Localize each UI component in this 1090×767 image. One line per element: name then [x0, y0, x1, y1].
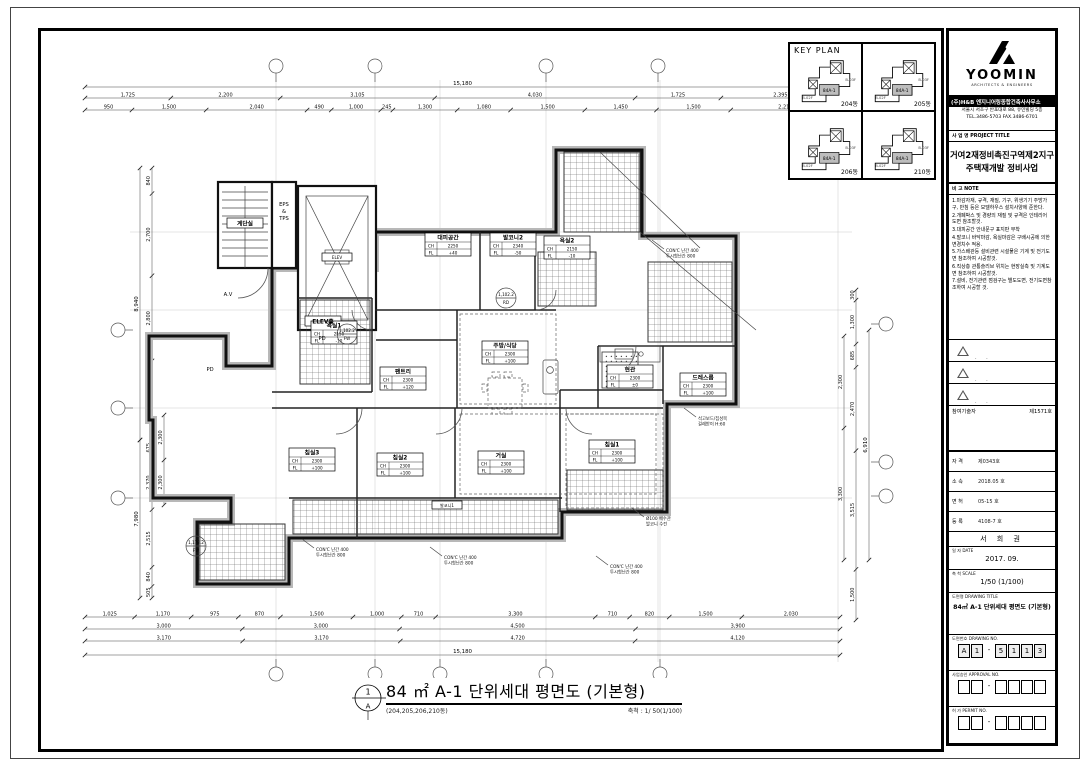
- scale-field: 축 척 SCALE 1/50 (1/100): [949, 570, 1055, 593]
- svg-text:1: 1: [365, 688, 370, 697]
- svg-text:FW: FW: [344, 336, 350, 341]
- drawing-title-text: 84 ㎡ A-1 단위세대 평면도 (기본형): [386, 678, 682, 705]
- yoomin-logo-icon: [987, 40, 1017, 66]
- svg-text:820: 820: [645, 611, 655, 617]
- svg-text:84A-1: 84A-1: [823, 156, 836, 162]
- svg-text:CH: CH: [383, 378, 389, 383]
- permit-number-field: 허 가 PERMIT NO.-: [949, 707, 1055, 743]
- credential-value: 2018.05 호: [978, 478, 1055, 485]
- svg-text:+100: +100: [611, 458, 623, 463]
- svg-text:걸레받이 H:60: 걸레받이 H:60: [698, 421, 726, 428]
- svg-text:발코니2: 발코니2: [503, 234, 523, 242]
- number-boxes: -: [952, 680, 1052, 694]
- svg-text:+100: +100: [504, 359, 516, 364]
- drawing-sheet: 15,1801,7252,2003,1054,0301,7252,3959501…: [0, 0, 1090, 767]
- svg-text:2250: 2250: [448, 244, 459, 249]
- svg-text:B-02F: B-02F: [875, 96, 886, 100]
- revision-dots: . .: [975, 355, 992, 361]
- number-boxes: A1-5113: [952, 644, 1052, 658]
- svg-text:1,000: 1,000: [370, 611, 384, 617]
- svg-text:CON'C 난간 400: CON'C 난간 400: [444, 554, 477, 561]
- number-box: [958, 680, 970, 694]
- title-block: YOOMIN ARCHITECTS & ENGINEERS (주)H&B 엔지니…: [946, 28, 1058, 746]
- firm-name: (주)H&B 엔지니어링종합건축사사무소: [949, 97, 1055, 107]
- svg-text:1,725: 1,725: [671, 92, 685, 98]
- number-row-label: 사업승인 APPROVAL NO.: [952, 672, 1052, 678]
- note-item: 6.직상층 관통슬리브 위치는 현장실측 및 기계도면 참조하여 시공할것.: [952, 264, 1053, 278]
- svg-text:1,025: 1,025: [103, 611, 117, 617]
- logo-word: YOOMIN: [966, 68, 1038, 83]
- number-box: [1021, 716, 1033, 730]
- svg-text:4,720: 4,720: [511, 635, 525, 641]
- note-item: 1.마감자재, 규격, 재질, 기구, 위생기기 주방가구, 반침 등은 모델하…: [952, 198, 1053, 212]
- drawing-title-field: 도면명 DRAWING TITLE 84㎡ A-1 단위세대 평면도 (기본형): [949, 593, 1055, 635]
- svg-text:투시형난간 800: 투시형난간 800: [444, 560, 474, 567]
- svg-text:870: 870: [255, 611, 265, 617]
- engineer-field: 참여기술자 제1571호: [949, 406, 1055, 452]
- svg-text:B-02F: B-02F: [802, 96, 813, 100]
- svg-text:2300: 2300: [501, 462, 512, 467]
- svg-text:CH: CH: [610, 376, 616, 381]
- svg-text:2,300: 2,300: [838, 375, 844, 389]
- svg-text:7,980: 7,980: [134, 511, 140, 527]
- svg-text:+100: +100: [399, 471, 411, 476]
- svg-text:4,030: 4,030: [528, 92, 542, 98]
- firm-address: 서울시 서초구 반포대로 88, 유민빌딩 5층 TEL.3486-5703 F…: [949, 107, 1055, 122]
- revision-triangle-icon: [957, 390, 969, 400]
- engineer-value: 제1571호: [1029, 408, 1052, 415]
- svg-text:1,500: 1,500: [310, 611, 324, 617]
- svg-text:84A-1: 84A-1: [896, 88, 909, 94]
- keyplan-cell: 84A-1B-03FB-02F210동: [862, 111, 935, 179]
- svg-text:3,300: 3,300: [838, 487, 844, 501]
- svg-text:1,000: 1,000: [349, 104, 363, 110]
- svg-text:2300: 2300: [312, 459, 323, 464]
- svg-text:CH: CH: [683, 384, 689, 389]
- svg-text:RD: RD: [503, 300, 509, 305]
- credential-row: 소 속2018.05 호: [949, 472, 1055, 492]
- svg-text:B-02F: B-02F: [802, 164, 813, 168]
- credential-label: 면 허: [949, 498, 978, 505]
- svg-text:욕실2: 욕실2: [560, 237, 575, 245]
- svg-text:CH: CH: [592, 451, 598, 456]
- svg-text:CH: CH: [481, 462, 487, 467]
- svg-text:+40: +40: [449, 251, 458, 256]
- svg-text:발코니1: 발코니1: [440, 502, 454, 508]
- svg-text:CON'C 난간 400: CON'C 난간 400: [666, 247, 699, 254]
- drawing-caption: 1 A 84 ㎡ A-1 단위세대 평면도 (기본형) (204,205,206…: [352, 678, 682, 720]
- revision-row: . .: [949, 362, 1055, 384]
- number-box: [958, 716, 970, 730]
- keyplan-cell-label: 205동: [914, 99, 931, 108]
- svg-text:710: 710: [608, 611, 618, 617]
- svg-text:1,300: 1,300: [418, 104, 432, 110]
- svg-text:&: &: [282, 209, 286, 215]
- svg-text:2340: 2340: [513, 244, 524, 249]
- svg-text:3,105: 3,105: [350, 92, 364, 98]
- svg-text:PD: PD: [318, 336, 325, 342]
- svg-text:1,178.2: 1,178.2: [188, 540, 204, 545]
- svg-text:2,515: 2,515: [146, 531, 152, 545]
- svg-text:팬트리: 팬트리: [395, 368, 411, 376]
- svg-text:840: 840: [146, 572, 152, 582]
- svg-text:2,300: 2,300: [158, 475, 164, 489]
- svg-text:CH: CH: [428, 244, 434, 249]
- keyplan-cell-label: 204동: [841, 99, 858, 108]
- credential-row: 등 록4108-7 호: [949, 512, 1055, 531]
- revision-rows: . .. .. .: [949, 340, 1055, 406]
- svg-text:2300: 2300: [403, 378, 414, 383]
- svg-text:FL: FL: [384, 385, 389, 390]
- number-box: 1: [1021, 644, 1033, 658]
- credential-row: 면 허05-15 호: [949, 492, 1055, 512]
- svg-text:1,170: 1,170: [156, 611, 170, 617]
- caption-main: 84 ㎡ A-1 단위세대 평면도 (기본형) (204,205,206,210…: [386, 678, 682, 715]
- credential-value: 05-15 호: [978, 498, 1055, 505]
- svg-text:710: 710: [414, 611, 424, 617]
- svg-text:2300: 2300: [505, 352, 516, 357]
- svg-text:2,800: 2,800: [146, 311, 152, 325]
- svg-text:FL: FL: [293, 466, 298, 471]
- svg-text:-10: -10: [569, 254, 576, 259]
- svg-text:B-03F: B-03F: [918, 78, 929, 82]
- svg-text:84A-1: 84A-1: [823, 88, 836, 94]
- credential-label: 등 록: [949, 518, 978, 525]
- svg-text:3,000: 3,000: [314, 623, 328, 629]
- number-box: [1034, 680, 1046, 694]
- key-plan: KEY PLAN 84A-1B-03FB-02F204동84A-1B-03FB-…: [788, 42, 936, 180]
- number-box: -: [984, 644, 994, 656]
- number-box: 3: [1034, 644, 1046, 658]
- svg-text:1,080: 1,080: [477, 104, 491, 110]
- svg-text:B-02F: B-02F: [875, 164, 886, 168]
- callout: [596, 556, 608, 565]
- svg-text:1,450: 1,450: [613, 104, 627, 110]
- svg-text:685: 685: [850, 351, 856, 361]
- level-marker: [496, 288, 516, 308]
- svg-text:3,000: 3,000: [156, 623, 170, 629]
- svg-text:2,300: 2,300: [158, 430, 164, 444]
- svg-text:CH: CH: [292, 459, 298, 464]
- svg-text:1,300: 1,300: [850, 315, 856, 329]
- svg-text:A: A: [366, 703, 371, 711]
- note-item: 3.대피공간 안내문구 표지판 부착: [952, 227, 1053, 234]
- notes-list: 1.마감자재, 규격, 재질, 기구, 위생기기 주방가구, 반침 등은 모델하…: [949, 195, 1055, 340]
- svg-text:1,725: 1,725: [121, 92, 135, 98]
- credential-label: 소 속: [949, 478, 978, 485]
- svg-text:현관: 현관: [625, 366, 636, 374]
- firm-logo: YOOMIN ARCHITECTS & ENGINEERS: [949, 31, 1055, 97]
- svg-text:투시형난간 800: 투시형난간 800: [610, 569, 640, 576]
- svg-text:드레스룸: 드레스룸: [692, 374, 714, 382]
- number-boxes: -: [952, 716, 1052, 730]
- svg-text:505: 505: [146, 587, 152, 597]
- svg-text:A.V: A.V: [224, 292, 233, 298]
- number-box: 1: [1008, 644, 1020, 658]
- svg-text:FL: FL: [429, 251, 434, 256]
- revision-row: . .: [949, 340, 1055, 362]
- number-box: [971, 680, 983, 694]
- svg-text:TPS: TPS: [278, 216, 289, 222]
- key-plan-grid: 84A-1B-03FB-02F204동84A-1B-03FB-02F205동84…: [789, 43, 935, 179]
- svg-text:+100: +100: [500, 469, 512, 474]
- svg-text:FL: FL: [684, 391, 689, 396]
- svg-text:B-03F: B-03F: [845, 78, 856, 82]
- credential-label: 자 격: [949, 458, 978, 465]
- svg-text:CON'C 난간 400: CON'C 난간 400: [610, 563, 643, 570]
- svg-text:2300: 2300: [612, 451, 623, 456]
- firm-info: (주)H&B 엔지니어링종합건축사사무소 서울시 서초구 반포대로 88, 유민…: [949, 97, 1055, 131]
- svg-text:CH: CH: [485, 352, 491, 357]
- svg-text:1,500: 1,500: [541, 104, 555, 110]
- note-item: 5.가스배관등 설비관련 시설물은 기계 및 전기도면 참조하여 시공할것.: [952, 249, 1053, 263]
- keyplan-building-icon: 84A-1B-03FB-02F: [865, 120, 933, 174]
- number-box: [971, 716, 983, 730]
- caption-scale: 축척 : 1/ 50(1/100): [628, 706, 682, 715]
- svg-text:+120: +120: [402, 385, 414, 390]
- number-box: [1008, 680, 1020, 694]
- keyplan-cell: 84A-1B-03FB-02F205동: [862, 43, 935, 111]
- svg-text:2,030: 2,030: [784, 611, 798, 617]
- svg-text:대피공간: 대피공간: [437, 234, 459, 242]
- svg-text:+100: +100: [702, 391, 714, 396]
- svg-text:3,300: 3,300: [508, 611, 522, 617]
- keyplan-building-icon: 84A-1B-03FB-02F: [792, 120, 860, 174]
- number-box: 1: [971, 644, 983, 658]
- number-box: -: [984, 680, 994, 692]
- svg-text:Ø100 배수관: Ø100 배수관: [646, 515, 671, 522]
- svg-text:ELEV: ELEV: [332, 255, 342, 260]
- svg-text:84A-1: 84A-1: [896, 156, 909, 162]
- svg-text:975: 975: [210, 611, 220, 617]
- svg-text:거실: 거실: [496, 452, 507, 460]
- svg-text:2,700: 2,700: [146, 227, 152, 241]
- svg-text:PD: PD: [206, 367, 213, 373]
- svg-text:2,470: 2,470: [850, 402, 856, 416]
- drawing-number-field: 도면번호 DRAWING NO.A1-5113: [949, 635, 1055, 671]
- svg-text:490: 490: [314, 104, 324, 110]
- svg-text:투시형난간 800: 투시형난간 800: [316, 552, 346, 559]
- keyplan-cell-label: 210동: [914, 167, 931, 176]
- svg-text:2300: 2300: [400, 464, 411, 469]
- revision-row: . .: [949, 384, 1055, 405]
- svg-text:4,120: 4,120: [730, 635, 744, 641]
- svg-text:245: 245: [382, 104, 392, 110]
- engineer-label: 참여기술자: [952, 408, 976, 415]
- svg-text:1,102.2: 1,102.2: [498, 292, 514, 297]
- svg-text:침실2: 침실2: [393, 454, 408, 462]
- note-item: 2.개폐박스 및 경량의 재질 및 규격은 인테리어 도면 참조할것.: [952, 213, 1053, 227]
- svg-text:CH: CH: [547, 247, 553, 252]
- keyplan-cell: 84A-1B-03FB-02F206동: [789, 111, 862, 179]
- svg-text:1,500: 1,500: [850, 588, 856, 602]
- svg-text:15,180: 15,180: [453, 649, 472, 655]
- svg-text:15,180: 15,180: [453, 81, 472, 87]
- svg-text:2300: 2300: [630, 376, 641, 381]
- svg-text:300: 300: [850, 290, 856, 300]
- svg-text:2,395: 2,395: [773, 92, 787, 98]
- revision-triangle-icon: [957, 346, 969, 356]
- logo-subtitle: ARCHITECTS & ENGINEERS: [971, 83, 1033, 87]
- svg-text:1,500: 1,500: [162, 104, 176, 110]
- revision-dots: . .: [975, 399, 992, 405]
- svg-text:FL: FL: [482, 469, 487, 474]
- credential-value: 제0343호: [978, 458, 1055, 465]
- svg-text:EPS: EPS: [279, 202, 289, 208]
- svg-text:FL: FL: [486, 359, 491, 364]
- svg-text:침실3: 침실3: [305, 449, 320, 457]
- keyplan-cell-label: 206동: [841, 167, 858, 176]
- svg-text:주방/식당: 주방/식당: [493, 342, 517, 350]
- approval-number-field: 사업승인 APPROVAL NO.-: [949, 671, 1055, 707]
- svg-text:1,500: 1,500: [698, 611, 712, 617]
- credential-value: 4108-7 호: [978, 518, 1055, 525]
- note-item: 4.발코니 바닥마감, 욕실마감은 구배시공에 의한 변경치수 적용.: [952, 235, 1053, 249]
- svg-text:석고보드/집성목: 석고보드/집성목: [698, 415, 727, 422]
- svg-text:2150: 2150: [567, 247, 578, 252]
- number-box: [995, 716, 1007, 730]
- section-mark-icon: 1 A: [352, 680, 386, 720]
- approver-name: 서 희 권: [949, 532, 1055, 547]
- svg-text:FL: FL: [548, 254, 553, 259]
- svg-text:3,170: 3,170: [314, 635, 328, 641]
- svg-text:6,910: 6,910: [863, 437, 869, 453]
- svg-text:FL: FL: [381, 471, 386, 476]
- svg-text:3,170: 3,170: [157, 635, 171, 641]
- credential-row: 자 격제0343호: [949, 452, 1055, 472]
- note-header: 비 고 NOTE: [949, 184, 1055, 195]
- number-box: [1008, 716, 1020, 730]
- svg-text:B-03F: B-03F: [918, 146, 929, 150]
- keyplan-building-icon: 84A-1B-03FB-02F: [865, 52, 933, 106]
- svg-text:CH: CH: [380, 464, 386, 469]
- svg-text:+100: +100: [311, 466, 323, 471]
- number-box: -: [984, 716, 994, 728]
- svg-text:FL: FL: [593, 458, 598, 463]
- revision-dots: . .: [975, 377, 992, 383]
- svg-text:1,102.2: 1,102.2: [339, 328, 355, 333]
- number-box: 5: [995, 644, 1007, 658]
- svg-text:침실1: 침실1: [605, 441, 620, 449]
- revision-triangle-icon: [957, 368, 969, 378]
- svg-text:950: 950: [104, 104, 114, 110]
- number-row-label: 허 가 PERMIT NO.: [952, 708, 1052, 714]
- svg-text:B-03F: B-03F: [845, 146, 856, 150]
- svg-text:계단실: 계단실: [237, 220, 253, 228]
- svg-text:FW: FW: [193, 548, 199, 553]
- note-item: 7.설비, 전기관련 점검구는 별도도면, 전기도면참조하여 시공할 것.: [952, 278, 1053, 292]
- svg-text:1,500: 1,500: [686, 104, 700, 110]
- svg-text:CON'C 난간 400: CON'C 난간 400: [316, 546, 349, 553]
- svg-text:3,900: 3,900: [731, 623, 745, 629]
- number-box: [995, 680, 1007, 694]
- svg-text:발코니 수전: 발코니 수전: [646, 521, 667, 528]
- project-title: 거여2재정비촉진구역제2지구 주택재개발 정비사업: [949, 142, 1055, 184]
- caption-subrow: (204,205,206,210동) 축척 : 1/ 50(1/100): [386, 705, 682, 715]
- number-box: [1034, 716, 1046, 730]
- project-title-header: 사 업 명 PROJECT TITLE: [949, 131, 1055, 142]
- caption-buildings: (204,205,206,210동): [386, 706, 448, 715]
- svg-text:투시형난간 800: 투시형난간 800: [666, 253, 696, 260]
- svg-text:4,500: 4,500: [510, 623, 524, 629]
- svg-text:±0: ±0: [632, 383, 638, 388]
- svg-text:2,040: 2,040: [249, 104, 263, 110]
- number-row-label: 도면번호 DRAWING NO.: [952, 636, 1052, 642]
- keyplan-building-icon: 84A-1B-03FB-02F: [792, 52, 860, 106]
- svg-text:2,200: 2,200: [218, 92, 232, 98]
- callout: [684, 408, 696, 417]
- svg-text:FL: FL: [611, 383, 616, 388]
- svg-text:CH: CH: [493, 244, 499, 249]
- svg-text:840: 840: [146, 176, 152, 186]
- svg-text:2300: 2300: [703, 384, 714, 389]
- svg-text:-50: -50: [515, 251, 522, 256]
- keyplan-cell: 84A-1B-03FB-02F204동: [789, 43, 862, 111]
- number-box: A: [958, 644, 970, 658]
- date-field: 일 자 DATE 2017. 09.: [949, 547, 1055, 570]
- svg-text:FL: FL: [494, 251, 499, 256]
- number-box: [1021, 680, 1033, 694]
- svg-text:8,940: 8,940: [134, 296, 140, 312]
- credential-rows: 자 격제0343호소 속2018.05 호면 허05-15 호등 록4108-7…: [949, 452, 1055, 532]
- svg-text:3,515: 3,515: [850, 503, 856, 517]
